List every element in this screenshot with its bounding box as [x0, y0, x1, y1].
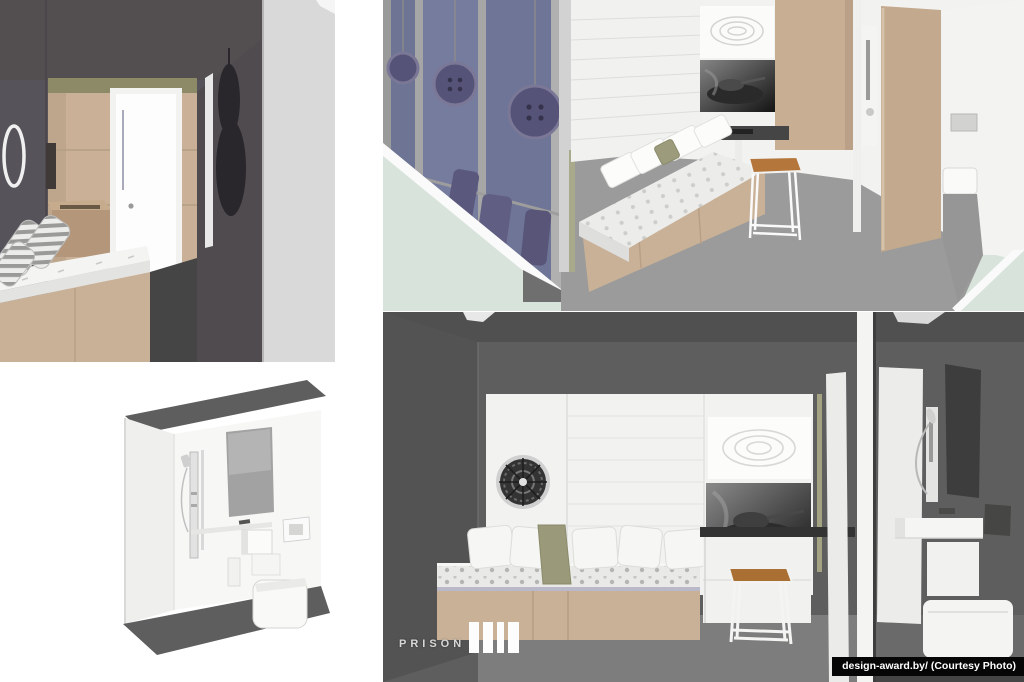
hallway-render-drawing — [0, 0, 335, 362]
wall-niche — [46, 143, 56, 189]
room-perspective-drawing — [383, 0, 1024, 311]
mirror — [945, 364, 981, 498]
mirror — [226, 427, 274, 517]
flush-plate — [951, 114, 977, 131]
watermark-credit: design-award.by/ (Courtesy Photo) — [832, 657, 1024, 676]
towel — [228, 558, 240, 586]
right-door-frame — [205, 73, 213, 248]
prison-cell-design-collage: PRISON design-award.by/ (Courtesy Photo) — [0, 0, 1024, 682]
open-door — [881, 6, 941, 252]
prison-logo-text: PRISON — [399, 638, 465, 650]
dartboard — [498, 457, 548, 507]
wall-cabinet — [984, 504, 1011, 536]
bathroom-drawing — [95, 372, 350, 667]
panel-room-perspective-render — [383, 0, 1024, 311]
panel-room-elevation-render: PRISON design-award.by/ (Courtesy Photo) — [383, 312, 1024, 682]
light-pillar — [263, 0, 335, 362]
flush-plate — [283, 517, 310, 542]
olive-trim — [817, 394, 822, 572]
ceiling — [0, 0, 263, 80]
room-elevation-drawing — [383, 312, 1024, 682]
divider-frame — [857, 312, 876, 682]
door-knob — [128, 203, 133, 208]
sketch-artwork — [708, 417, 811, 479]
door-panel — [877, 367, 923, 624]
toilet — [923, 600, 1013, 658]
sketch-artwork — [700, 6, 774, 58]
olive-blanket — [538, 525, 571, 584]
open-door-panel — [826, 372, 849, 682]
olive-trim — [569, 150, 575, 272]
tank-artwork — [700, 60, 775, 112]
toilet — [943, 168, 977, 194]
panel-bathroom-render — [95, 372, 350, 667]
left-wall — [125, 418, 174, 624]
panel-hallway-render — [0, 0, 335, 362]
sink — [242, 530, 272, 554]
